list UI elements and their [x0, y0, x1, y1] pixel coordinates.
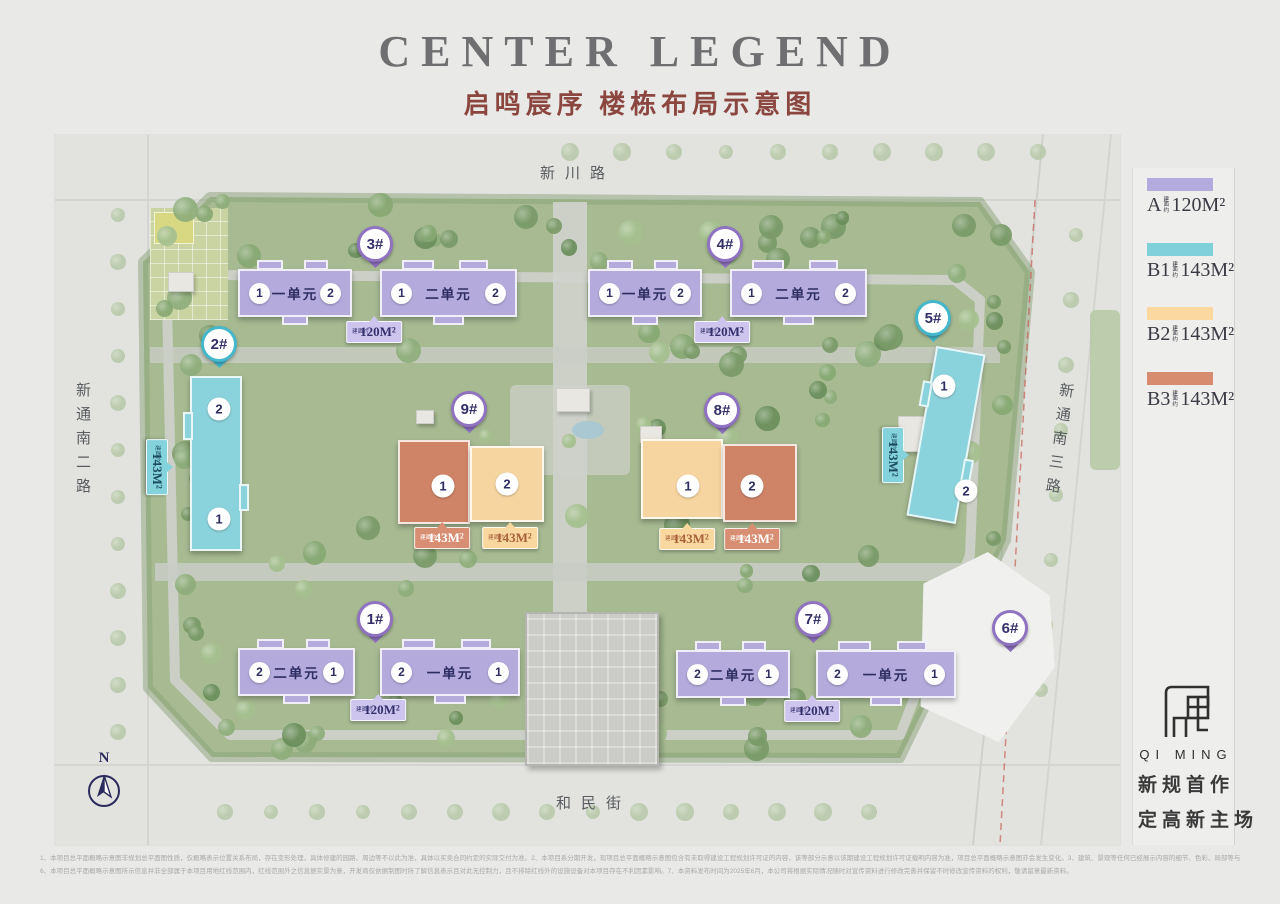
area-tag-value: 143M²: [673, 531, 709, 547]
tree-icon: [449, 711, 462, 724]
footprint-step: [306, 639, 331, 649]
area-tag-prefix: 建面约: [730, 537, 736, 542]
footprint-step: [897, 641, 927, 651]
building-pin-4: 4#: [707, 226, 743, 276]
commercial-building: [525, 612, 659, 766]
footprint-step: [720, 696, 746, 706]
unit-circle: 2: [485, 283, 506, 304]
tree-icon: [815, 413, 829, 427]
building-b7-left: 2二单元1: [676, 650, 790, 698]
compass-icon: [82, 767, 126, 811]
tree-icon: [684, 344, 700, 360]
legend-text: 143M²: [1180, 262, 1234, 279]
tree-icon: [539, 804, 555, 820]
legend-text: B1: [1147, 262, 1170, 279]
tree-icon: [948, 264, 967, 283]
footprint-step: [257, 639, 284, 649]
tree-icon: [356, 516, 380, 540]
tag-pointer: [437, 522, 447, 528]
unit-circle: 2: [955, 480, 978, 503]
legend-text: B2: [1147, 326, 1170, 343]
unit-circle: 1: [391, 283, 412, 304]
unit-circle: 2: [827, 664, 848, 685]
unit-circle: 2: [741, 475, 764, 498]
tree-icon: [111, 443, 125, 457]
area-tag-value: 120M²: [364, 702, 400, 718]
tree-icon: [822, 144, 837, 159]
legend-item-A: A建面约120M²: [1147, 178, 1237, 214]
tree-icon: [770, 144, 785, 159]
unit-label: 一单元: [272, 283, 319, 303]
qiming-logo-mark: [1157, 680, 1215, 738]
tree-icon: [110, 254, 125, 269]
footprint-step: [257, 260, 283, 270]
tree-icon: [173, 197, 198, 222]
tree-icon: [309, 804, 324, 819]
area-tag-prefix: 建面约: [790, 709, 796, 714]
tree-icon: [858, 545, 880, 567]
building-pin-6: 6#: [992, 610, 1028, 660]
unit-circle: 1: [933, 375, 956, 398]
tree-icon: [873, 143, 891, 161]
legend-item-B1: B1建面约143M²: [1147, 243, 1237, 279]
tree-icon: [755, 406, 780, 431]
tree-icon: [110, 724, 125, 739]
building-pin-5: 5#: [915, 300, 951, 350]
road-label-left: 新通南二路: [72, 382, 93, 502]
tree-icon: [398, 580, 414, 596]
tree-icon: [546, 218, 562, 234]
legend-swatch: [1147, 372, 1213, 385]
building-b1-right: 2一单元1: [380, 648, 520, 696]
tree-icon: [958, 309, 979, 330]
legend-text: 120M²: [1171, 197, 1225, 214]
unit-circle: 1: [323, 662, 344, 683]
tree-icon: [180, 354, 202, 376]
tree-icon: [850, 715, 873, 738]
legend-area-prefix: 建面约: [1172, 392, 1178, 409]
area-tag-value: 120M²: [708, 324, 744, 340]
footprint-step: [783, 315, 815, 325]
tree-icon: [1063, 292, 1078, 307]
legend-label: B1建面约143M²: [1147, 262, 1237, 279]
legend-area-prefix: 建面约: [1172, 327, 1178, 344]
unit-label: 一单元: [622, 283, 669, 303]
footprint-step: [607, 260, 633, 270]
tag-pointer: [505, 522, 515, 528]
legend-text: 143M²: [1180, 391, 1234, 408]
tree-icon: [269, 555, 285, 571]
tag-pointer: [807, 695, 817, 701]
building-pin-9: 9#: [451, 391, 487, 441]
unit-circle: 2: [249, 662, 270, 683]
footprint-step: [809, 260, 838, 270]
tag-pointer: [682, 523, 692, 529]
unit-circle: 1: [599, 283, 620, 304]
unit-circle: 1: [432, 475, 455, 498]
tree-icon: [723, 804, 738, 819]
tree-icon: [759, 215, 783, 239]
legend-area-prefix: 建面约: [1172, 263, 1178, 280]
pin-label: 3#: [357, 226, 393, 262]
unit-circle: 1: [677, 475, 700, 498]
area-tag: 建面约120M²: [784, 700, 840, 722]
unit-label: 二单元: [775, 283, 822, 303]
area-tag-value: 120M²: [360, 324, 396, 340]
slogan-line-2: 定高新主场: [1138, 805, 1234, 832]
tree-icon: [157, 226, 177, 246]
offsite-green-strip: [1090, 310, 1120, 470]
tree-icon: [188, 625, 204, 641]
area-tag: 建面约143M²: [882, 427, 904, 483]
unit-row: 1一单元2: [590, 271, 700, 315]
legend-text: B3: [1147, 391, 1170, 408]
area-tag-value: 143M²: [496, 530, 532, 546]
tree-icon: [997, 340, 1011, 354]
tree-icon: [992, 395, 1012, 415]
unit-circle: 1: [924, 664, 945, 685]
tree-icon: [977, 143, 995, 161]
area-tag-prefix: 建面约: [700, 330, 706, 335]
building-b3-left: 1一单元2: [238, 269, 352, 317]
tree-icon: [492, 803, 510, 821]
area-tag-prefix: 建面约: [420, 536, 426, 541]
tree-icon: [218, 719, 235, 736]
disclaimer-line-1: 1、本项目总平面概略示意图非规划总平面图性质，仅概略表示位置关系布局，存在变形处…: [40, 852, 1240, 865]
pin-label: 9#: [451, 391, 487, 427]
tree-icon: [196, 206, 213, 223]
tree-icon: [420, 225, 437, 242]
tree-icon: [303, 541, 327, 565]
tree-icon: [836, 211, 849, 224]
pin-label: 8#: [704, 392, 740, 428]
pin-label: 4#: [707, 226, 743, 262]
footprint-step: [239, 484, 249, 511]
tree-icon: [368, 193, 393, 218]
unit-circle: 2: [208, 398, 231, 421]
building-pin-3: 3#: [357, 226, 393, 276]
legend-label: B2建面约143M²: [1147, 326, 1237, 343]
tree-icon: [562, 434, 575, 447]
footprint-step: [283, 694, 310, 704]
footprint-step: [654, 260, 678, 270]
tree-icon: [236, 700, 254, 718]
tag-pointer: [903, 450, 909, 460]
pin-label: 5#: [915, 300, 951, 336]
brand-logo: QI MING 新规首作 定高新主场: [1138, 680, 1234, 832]
area-tag-prefix: 建面约: [665, 537, 671, 542]
unit-circle: 2: [391, 662, 412, 683]
tree-icon: [217, 804, 232, 819]
area-tag: 建面约120M²: [350, 699, 406, 721]
tree-icon: [740, 564, 753, 577]
tree-icon: [201, 643, 222, 664]
unit-row: 1二单元2: [732, 271, 865, 315]
tree-icon: [561, 239, 578, 256]
legend-swatch: [1147, 243, 1213, 256]
slogan-line-1: 新规首作: [1138, 770, 1234, 797]
tag-pointer: [167, 462, 173, 472]
small-structure: [556, 388, 590, 412]
legend-area-prefix: 建面约: [1163, 198, 1169, 215]
unit-circle: 2: [835, 283, 856, 304]
area-tag: 建面约120M²: [346, 321, 402, 343]
small-structure: [168, 272, 194, 292]
footprint-step: [752, 260, 784, 270]
unit-circle: 1: [249, 283, 270, 304]
unit-row: 1一单元2: [240, 271, 350, 315]
area-tag-prefix: 建面约: [488, 536, 494, 541]
legend-swatch: [1147, 178, 1213, 191]
unit-label: 二单元: [710, 664, 757, 684]
area-tag-value: 120M²: [798, 703, 834, 719]
unit-label: 二单元: [425, 283, 472, 303]
building-pin-2: 2#: [201, 326, 237, 376]
unit-label: 一单元: [427, 662, 474, 682]
road-label-bottom: 和民街: [556, 792, 631, 813]
unit-circle: 1: [741, 283, 762, 304]
tree-icon: [802, 565, 820, 583]
footprint-step: [434, 694, 467, 704]
area-tag: 建面约143M²: [146, 439, 168, 495]
pin-label: 1#: [357, 601, 393, 637]
area-tag-value: 143M²: [885, 441, 901, 477]
disclaimer-line-2: 6、本项目总平面概略示意图所示信息并非全部属于本项目用地红线范围内，红线范围外之…: [40, 865, 1240, 878]
footprint-step: [695, 641, 721, 651]
tree-icon: [613, 143, 630, 160]
tree-icon: [748, 727, 766, 745]
unit-circle: 1: [208, 508, 231, 531]
building-b7-right: 2一单元1: [816, 650, 956, 698]
tree-icon: [110, 677, 126, 693]
footprint-step: [838, 641, 871, 651]
tree-icon: [309, 726, 324, 741]
building-b3-right: 1二单元2: [380, 269, 517, 317]
area-tag: 建面约120M²: [694, 321, 750, 343]
building-b4-left: 1一单元2: [588, 269, 702, 317]
area-tag: 建面约143M²: [659, 528, 715, 550]
unit-row: 2二单元1: [240, 650, 353, 694]
unit-row: 1二单元2: [382, 271, 515, 315]
tree-icon: [282, 723, 306, 747]
unit-circle: 2: [496, 473, 519, 496]
footprint-step: [402, 639, 435, 649]
building-pin-7: 7#: [795, 601, 831, 651]
tag-pointer: [373, 694, 383, 700]
unit-circle: 1: [758, 664, 779, 685]
page-title: CENTER LEGEND: [0, 26, 1280, 77]
brand-name: QI MING: [1138, 747, 1234, 762]
tree-icon: [156, 300, 173, 317]
footprint-step: [402, 260, 434, 270]
legend-swatch: [1147, 307, 1213, 320]
area-tag-prefix: 建面约: [155, 445, 160, 451]
area-tag: 建面约143M²: [724, 528, 780, 550]
footprint-step: [632, 315, 658, 325]
footprint-step: [742, 641, 766, 651]
tree-icon: [561, 143, 579, 161]
area-tag: 建面约143M²: [414, 527, 470, 549]
area-tag-prefix: 建面约: [352, 330, 358, 335]
tree-icon: [111, 302, 125, 316]
footprint-step: [459, 260, 488, 270]
tree-icon: [814, 803, 831, 820]
building-b4-right: 1二单元2: [730, 269, 867, 317]
tag-pointer: [369, 316, 379, 322]
tree-icon: [877, 324, 903, 350]
poster-root: CENTER LEGEND 启鸣宸序 楼栋布局示意图 新川路 和民街: [0, 0, 1280, 904]
area-tag-value: 143M²: [428, 530, 464, 546]
unit-circle: 2: [320, 283, 341, 304]
unit-row: 2二单元1: [678, 652, 788, 696]
tree-icon: [952, 214, 976, 238]
small-structure: [416, 410, 434, 424]
tree-icon: [925, 143, 943, 161]
area-tag-prefix: 建面约: [356, 708, 362, 713]
tree-icon: [295, 580, 312, 597]
pin-label: 7#: [795, 601, 831, 637]
footprint-step: [183, 412, 193, 439]
tree-icon: [649, 342, 670, 363]
legend-item-B2: B2建面约143M²: [1147, 307, 1237, 343]
tree-icon: [987, 295, 1001, 309]
unit-row: 2一单元1: [818, 652, 954, 696]
unit-circle: 1: [488, 662, 509, 683]
road-label-top: 新川路: [540, 162, 615, 183]
footprint-step: [433, 315, 465, 325]
pin-label: 2#: [201, 326, 237, 362]
legend-text: 143M²: [1180, 326, 1234, 343]
area-tag: 建面约143M²: [482, 527, 538, 549]
building-b1-left: 2二单元1: [238, 648, 355, 696]
footprint-step: [870, 696, 903, 706]
tree-icon: [676, 803, 693, 820]
footprint-step: [282, 315, 308, 325]
area-tag-prefix: 建面约: [891, 433, 896, 439]
tag-pointer: [747, 523, 757, 529]
unit-circle: 2: [670, 283, 691, 304]
pin-label: 6#: [992, 610, 1028, 646]
tree-icon: [768, 803, 786, 821]
building-pin-1: 1#: [357, 601, 393, 651]
legend-label: A建面约120M²: [1147, 197, 1237, 214]
footprint-step: [304, 260, 328, 270]
north-compass: N: [82, 750, 126, 816]
area-tag-value: 143M²: [149, 453, 165, 489]
footprint-step: [461, 639, 491, 649]
unit-label: 二单元: [273, 662, 320, 682]
legend-text: A: [1147, 197, 1161, 214]
tree-icon: [630, 803, 648, 821]
legend-label: B3建面约143M²: [1147, 391, 1237, 408]
area-tag-value: 143M²: [738, 531, 774, 547]
page-subtitle: 启鸣宸序 楼栋布局示意图: [0, 84, 1280, 121]
tree-icon: [215, 194, 230, 209]
tree-icon: [111, 349, 125, 363]
tag-pointer: [717, 316, 727, 322]
tree-icon: [111, 537, 125, 551]
north-label: N: [82, 750, 126, 767]
building-pin-8: 8#: [704, 392, 740, 442]
unit-row: 2一单元1: [382, 650, 518, 694]
legend-item-B3: B3建面约143M²: [1147, 372, 1237, 408]
unit-circle: 2: [687, 664, 708, 685]
unit-label: 一单元: [863, 664, 910, 684]
tree-icon: [618, 220, 643, 245]
